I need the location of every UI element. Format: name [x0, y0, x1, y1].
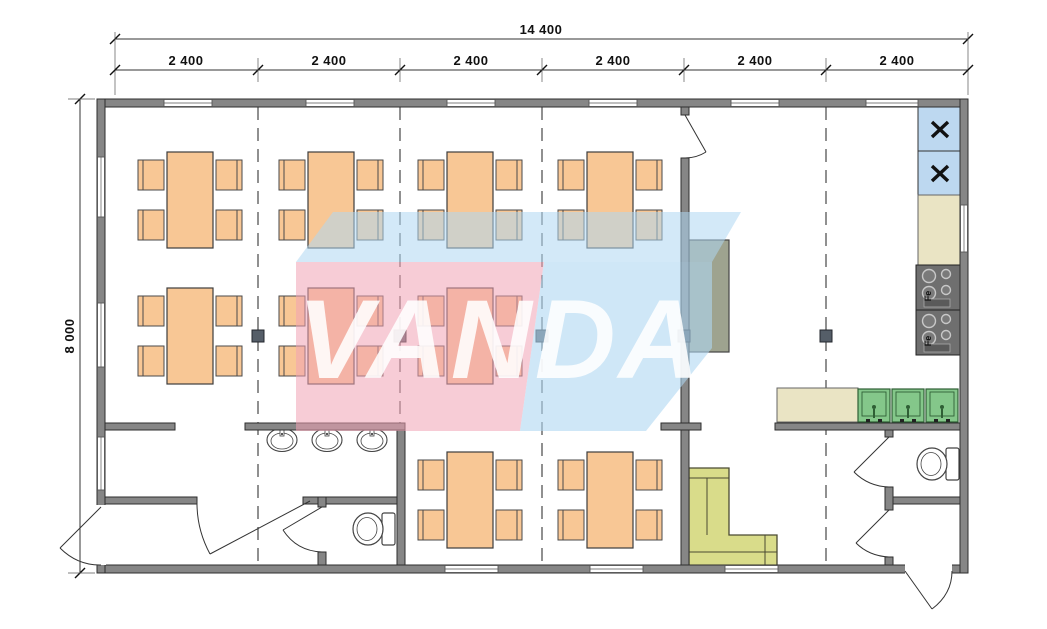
- dimension-label-total-height: 8 000: [62, 318, 77, 353]
- window: [164, 100, 212, 107]
- sink-counter: [777, 388, 858, 422]
- watermark-shape-blue-top: [296, 212, 741, 262]
- column-marker: [252, 330, 264, 342]
- toilet: [353, 513, 395, 545]
- watermark: VANDA: [296, 212, 741, 431]
- dimension-label-total-width: 14 400: [520, 22, 563, 37]
- dimension-top-total: 14 400: [110, 22, 973, 95]
- kitchen-sink: [926, 389, 958, 422]
- kitchen-counter: [918, 195, 960, 265]
- window: [445, 566, 498, 573]
- kitchen-sink: [858, 389, 890, 422]
- refrigerator: [918, 151, 960, 195]
- wash-basin: [312, 429, 342, 452]
- stove: [916, 310, 960, 355]
- dimension-label-module-2: 2 400: [311, 53, 346, 68]
- stove-marking: Fe: [923, 291, 933, 302]
- window: [590, 566, 643, 573]
- dimension-left: 8 000: [62, 94, 95, 578]
- door-swing: [905, 564, 952, 609]
- toilet: [917, 448, 959, 480]
- column-marker: [820, 330, 832, 342]
- dimension-label-module-1: 2 400: [168, 53, 203, 68]
- window: [98, 303, 105, 367]
- kitchen-appliance-column: Fe Fe: [916, 107, 960, 355]
- kitchen-sink: [892, 389, 924, 422]
- dimension-label-module-5: 2 400: [737, 53, 772, 68]
- window: [98, 157, 105, 217]
- window: [306, 100, 354, 107]
- refrigerator: [918, 107, 960, 151]
- window: [589, 100, 637, 107]
- wash-basin: [267, 429, 297, 452]
- door-swing: [60, 505, 106, 565]
- watermark-text: VANDA: [298, 277, 703, 402]
- stove-marking: Fe: [923, 336, 933, 347]
- window: [866, 100, 918, 107]
- window: [98, 437, 105, 490]
- dimension-label-module-4: 2 400: [595, 53, 630, 68]
- wash-basins: [267, 429, 387, 452]
- sink-counter-row: [777, 388, 958, 422]
- wash-basin: [357, 429, 387, 452]
- dimension-label-module-6: 2 400: [879, 53, 914, 68]
- floor-plan-page: 14 400 2 400 2 400 2 400 2 400 2 400 2 4…: [0, 0, 1047, 629]
- window: [447, 100, 495, 107]
- floor-plan-canvas: 14 400 2 400 2 400 2 400 2 400 2 400 2 4…: [0, 0, 1047, 629]
- dimension-label-module-3: 2 400: [453, 53, 488, 68]
- stove: [916, 265, 960, 310]
- dimension-top-modules: 2 400 2 400 2 400 2 400 2 400 2 400: [110, 53, 973, 82]
- window: [731, 100, 779, 107]
- window: [961, 205, 968, 252]
- window: [725, 566, 778, 573]
